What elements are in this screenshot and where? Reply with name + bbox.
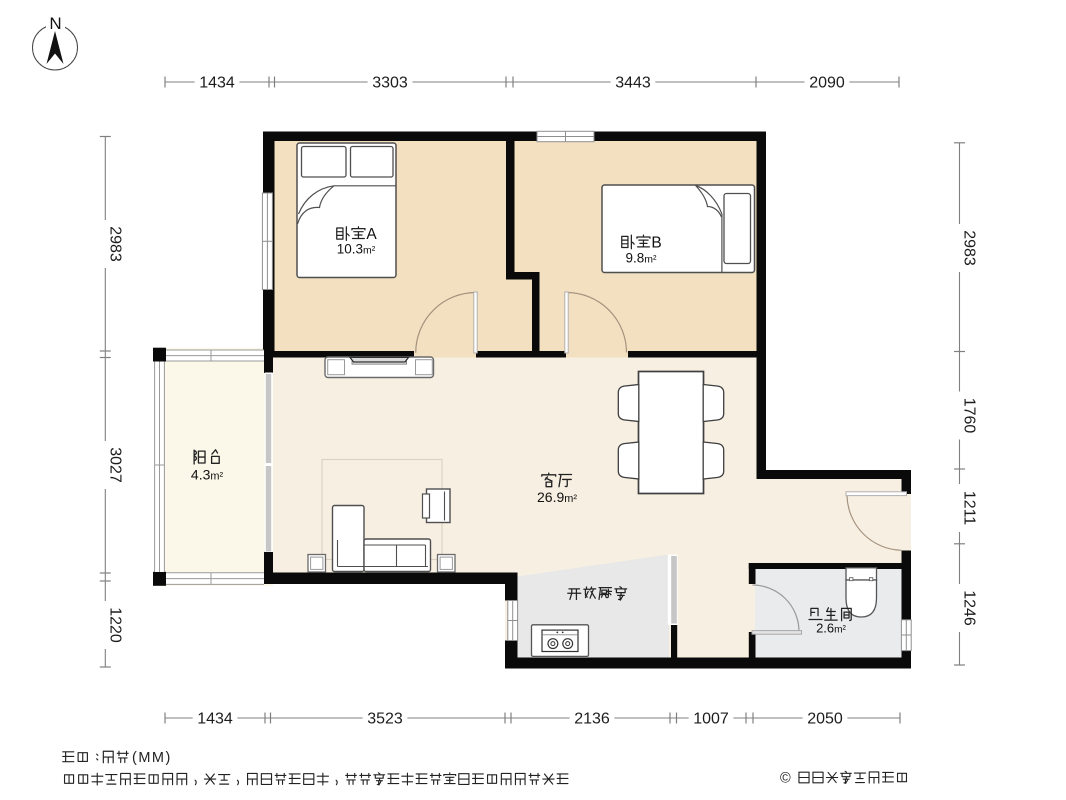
svg-text:2983: 2983	[107, 226, 124, 262]
svg-text:1434: 1434	[197, 711, 233, 728]
svg-text:2983: 2983	[961, 230, 978, 266]
svg-text:B: B	[651, 235, 661, 252]
svg-text:1760: 1760	[961, 398, 978, 434]
svg-text:©: ©	[780, 771, 791, 787]
svg-text:2090: 2090	[809, 75, 845, 92]
svg-text:3523: 3523	[367, 711, 403, 728]
svg-text:(MM): (MM)	[132, 750, 172, 766]
svg-text:3443: 3443	[615, 75, 651, 92]
svg-text:1007: 1007	[693, 711, 729, 728]
svg-text:N: N	[49, 14, 61, 33]
svg-text:1434: 1434	[199, 75, 235, 92]
svg-text:1246: 1246	[961, 590, 978, 626]
svg-text:A: A	[366, 226, 377, 243]
svg-text:10.3m²: 10.3m²	[337, 241, 376, 256]
svg-text:3303: 3303	[372, 75, 408, 92]
svg-text:9.8m²: 9.8m²	[625, 250, 657, 265]
svg-text:2050: 2050	[807, 711, 843, 728]
svg-text:2136: 2136	[574, 711, 610, 728]
svg-text:1211: 1211	[961, 491, 978, 526]
svg-text:1220: 1220	[107, 607, 124, 643]
svg-text:3027: 3027	[107, 447, 124, 483]
